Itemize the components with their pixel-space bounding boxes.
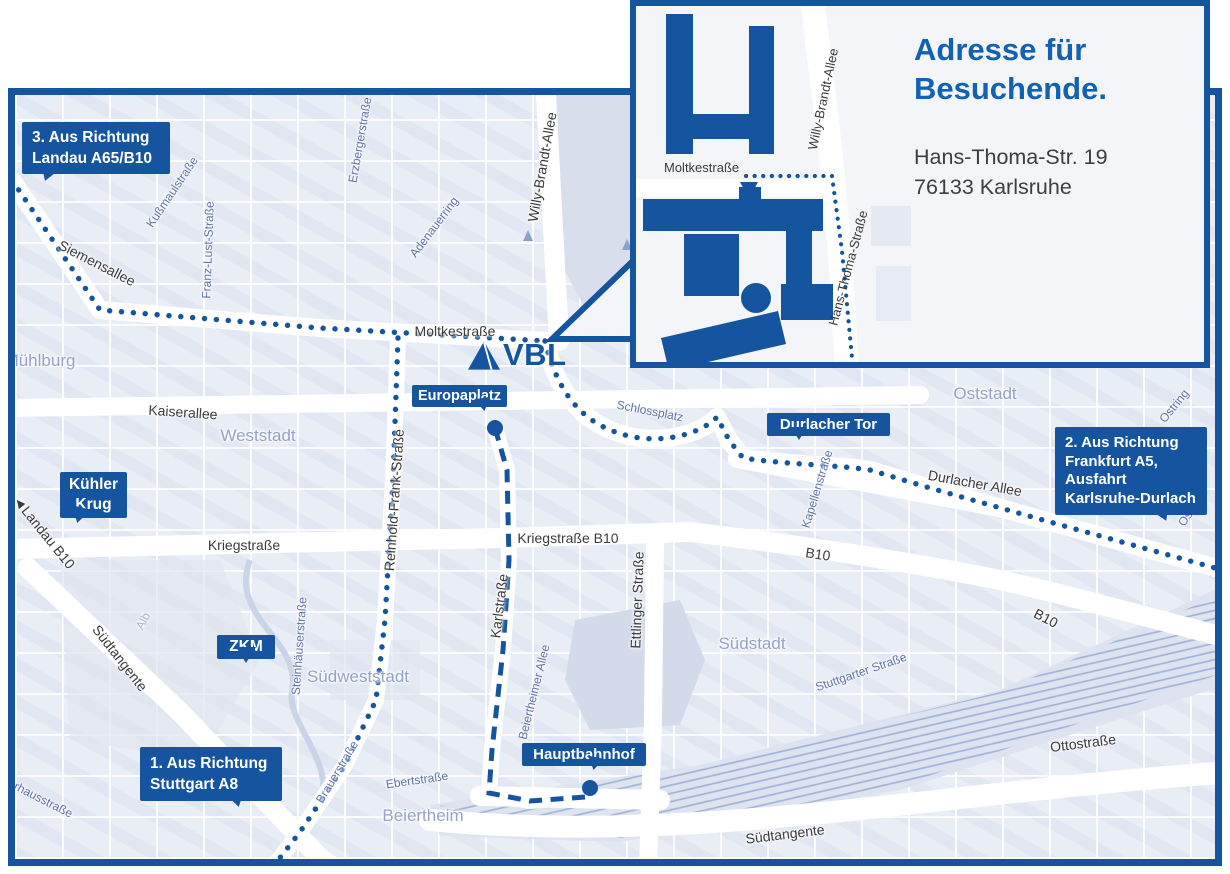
callout-kuehler-krug: Kühler Krug bbox=[60, 472, 127, 518]
callout-route-3-landau: 3. Aus Richtung Landau A65/B10 bbox=[22, 122, 170, 174]
visitor-address-inset: Moltkestraße Willy-Brandt-Allee Hans-Tho… bbox=[630, 0, 1210, 368]
callout-line: Frankfurt A5, bbox=[1065, 453, 1197, 472]
callout-zkm: ZKM bbox=[217, 635, 275, 659]
callout-route-1-stuttgart: 1. Aus Richtung Stuttgart A8 bbox=[140, 747, 282, 801]
callout-tail bbox=[474, 397, 493, 420]
inset-title-line1: Adresse für bbox=[914, 30, 1107, 69]
callout-line: 3. Aus Richtung bbox=[32, 127, 160, 148]
callout-line: Europaplatz bbox=[412, 388, 507, 404]
inset-label-moltkestrasse: Moltkestraße bbox=[664, 160, 739, 175]
callout-durlacher-tor: Durlacher Tor bbox=[767, 413, 890, 436]
callout-line: Ausfahrt bbox=[1065, 471, 1197, 490]
callout-line: 2. Aus Richtung bbox=[1065, 434, 1197, 453]
callout-line: Hauptbahnhof bbox=[522, 746, 646, 763]
inset-title: Adresse für Besuchende. bbox=[914, 30, 1107, 108]
callout-hauptbahnhof: Hauptbahnhof bbox=[522, 743, 646, 766]
inset-address: Hans-Thoma-Str. 19 76133 Karlsruhe bbox=[914, 142, 1108, 202]
callout-tail bbox=[236, 647, 256, 673]
inset-address-line2: 76133 Karlsruhe bbox=[914, 172, 1108, 202]
callout-line: Karlsruhe-Durlach bbox=[1065, 490, 1197, 509]
callout-line: Durlacher Tor bbox=[767, 416, 890, 433]
callout-route-2-frankfurt: 2. Aus Richtung Frankfurt A5, Ausfahrt K… bbox=[1055, 427, 1207, 515]
callout-europaplatz: Europaplatz bbox=[412, 385, 507, 407]
callout-tail bbox=[791, 427, 807, 448]
callout-line: Stuttgart A8 bbox=[150, 774, 272, 795]
callout-line: Kühler bbox=[60, 475, 127, 495]
callout-line: 1. Aus Richtung bbox=[150, 753, 272, 774]
vbl-pyramid-icon bbox=[468, 341, 500, 370]
city-map-page: Siemensallee Moltkestraße Willy-Brandt-A… bbox=[0, 0, 1230, 874]
inset-address-line1: Hans-Thoma-Str. 19 bbox=[914, 142, 1108, 172]
inset-title-line2: Besuchende. bbox=[914, 69, 1107, 108]
